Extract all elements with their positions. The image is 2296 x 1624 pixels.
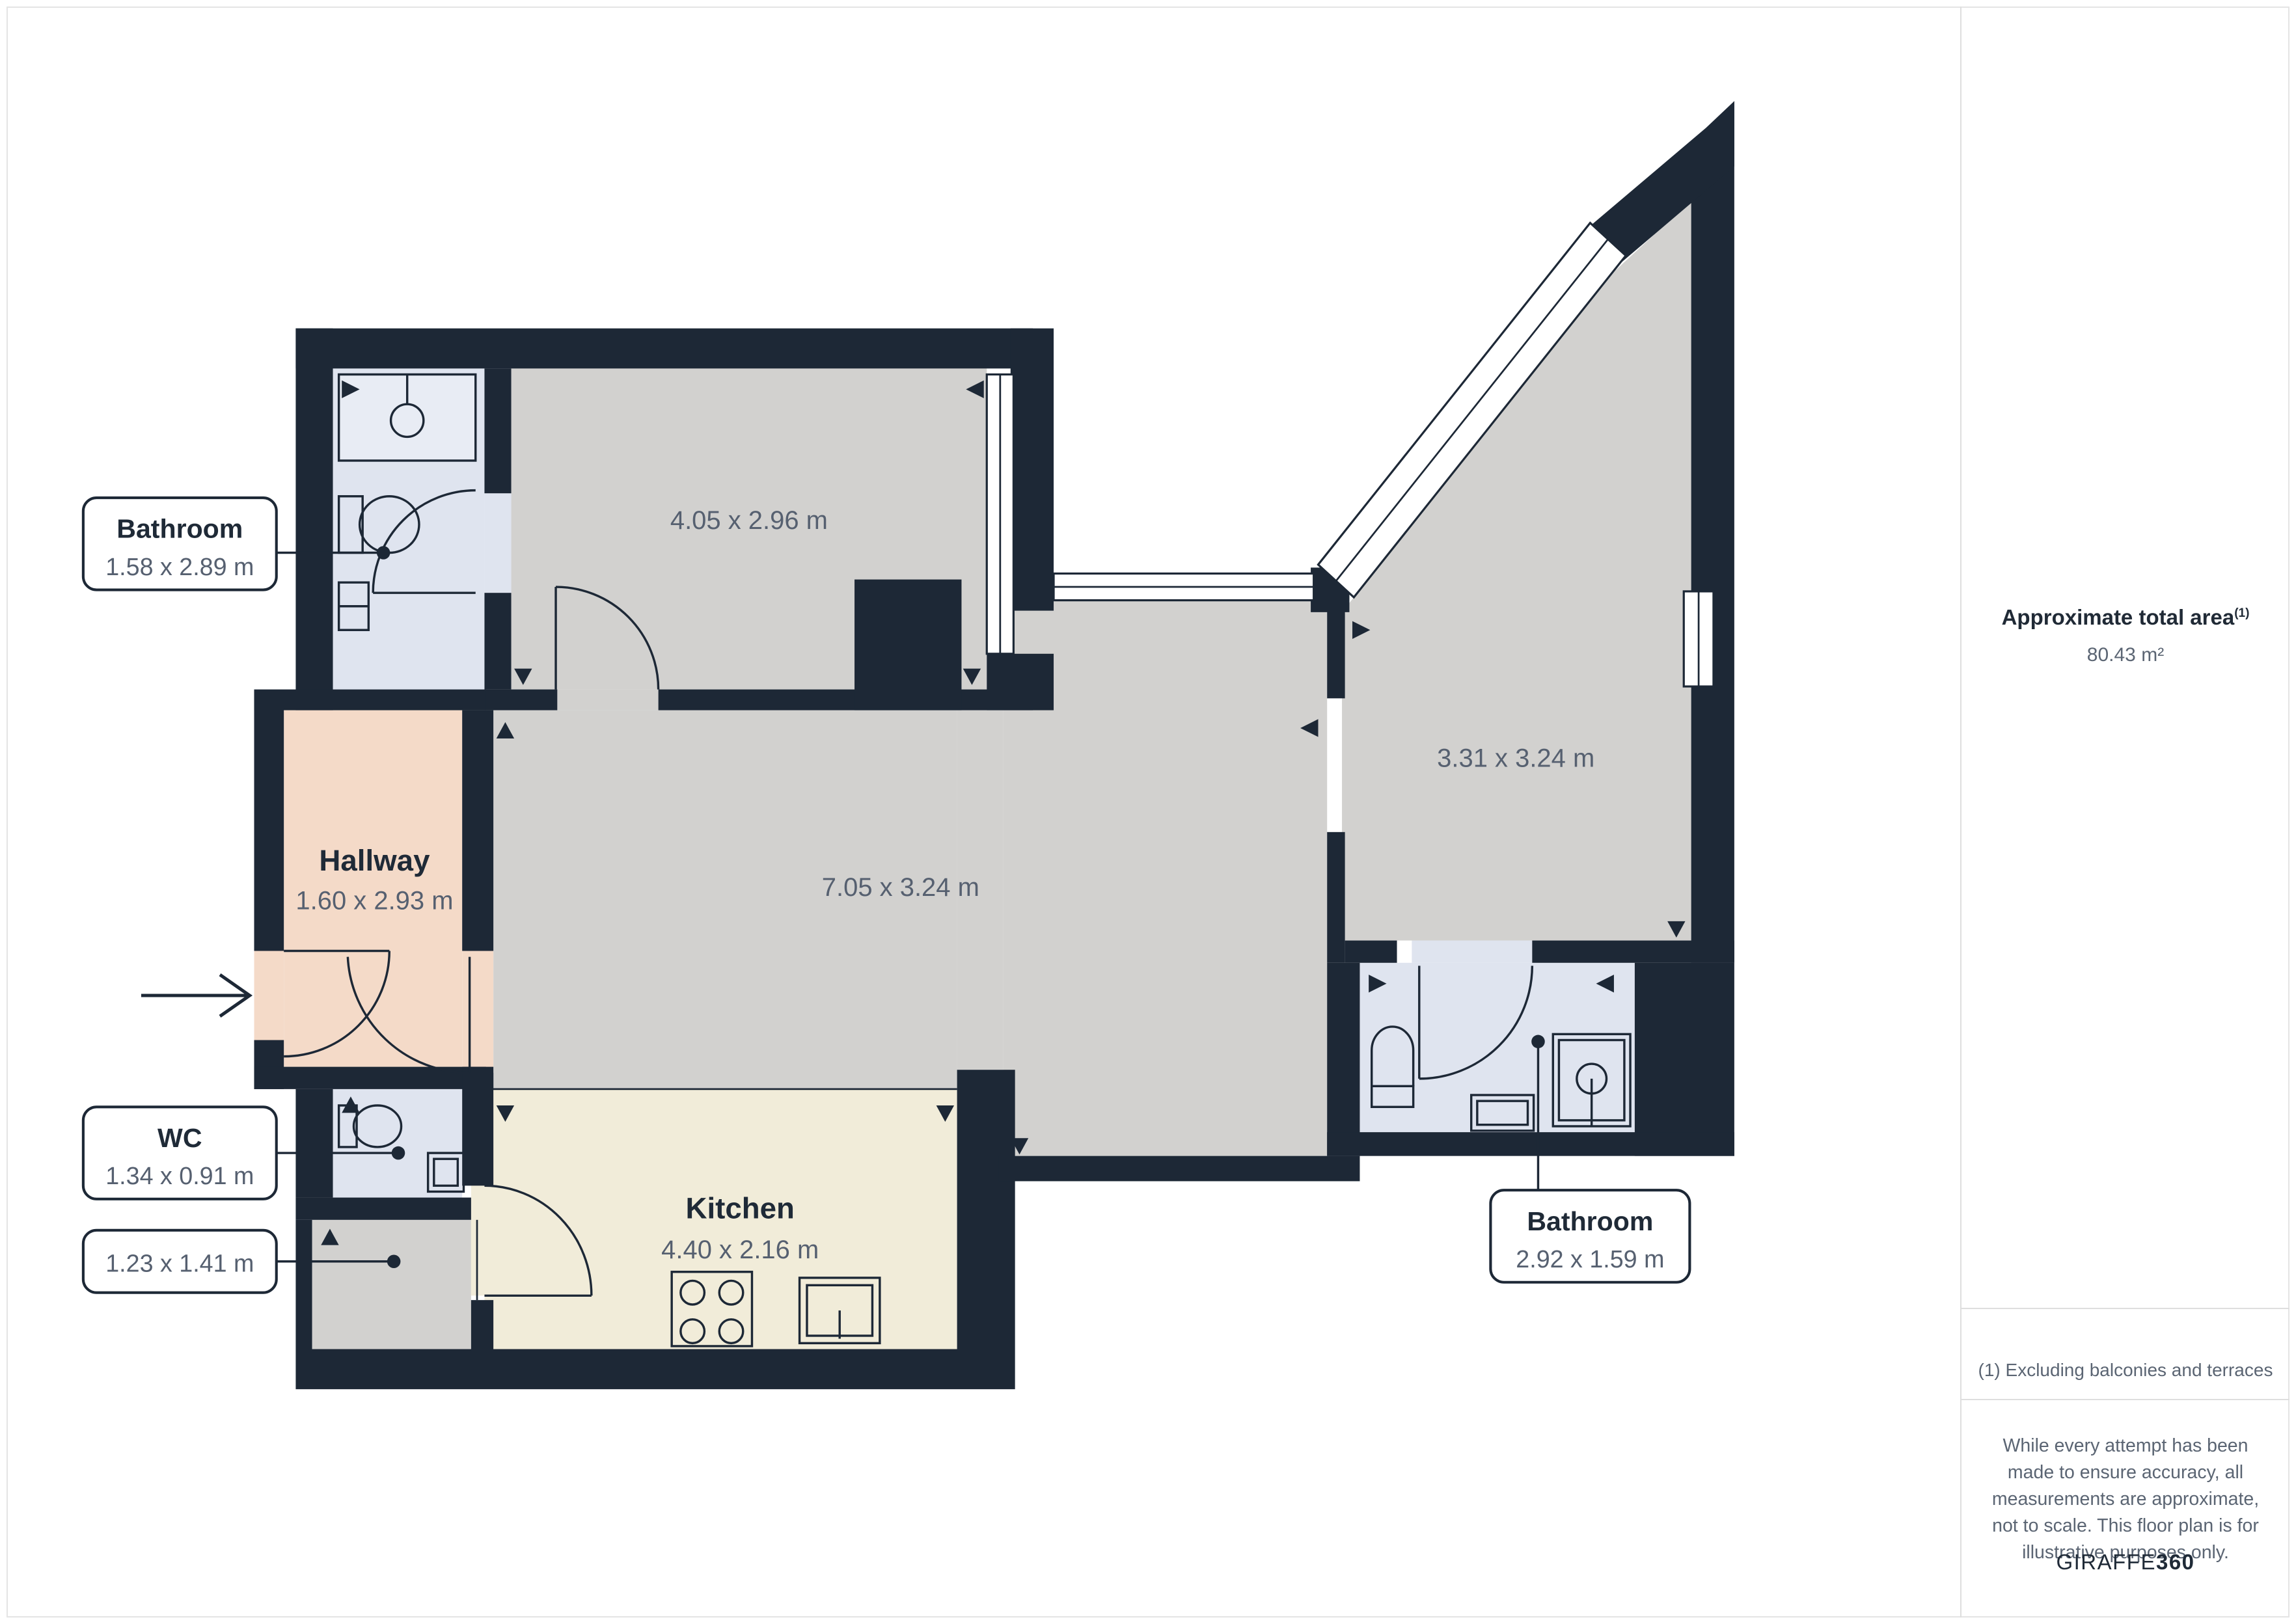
callout-dims: 1.34 x 0.91 m bbox=[105, 1162, 254, 1189]
wall-segment bbox=[1327, 1132, 1734, 1156]
wall-segment bbox=[999, 1156, 1360, 1182]
room-store-floor bbox=[312, 1220, 471, 1349]
callout-dims: 1.58 x 2.89 m bbox=[105, 553, 254, 580]
divider bbox=[1961, 1308, 2289, 1309]
kitchen-name: Kitchen bbox=[685, 1192, 794, 1225]
wall-segment bbox=[295, 1089, 333, 1198]
wall-right bbox=[1691, 101, 1734, 962]
wall-segment bbox=[1345, 941, 1397, 963]
giraffe360-logo: GIRAFFE360 bbox=[1961, 1550, 2289, 1575]
footnote-marker: (1) bbox=[2234, 606, 2249, 620]
floorplan-canvas: 4.05 x 2.96 m 7.05 x 3.24 m 3.31 x 3.24 … bbox=[0, 0, 1960, 1624]
wall-segment bbox=[295, 329, 333, 710]
hallway-name: Hallway bbox=[319, 844, 430, 877]
callout-name: Bathroom bbox=[116, 514, 243, 544]
callout-name: WC bbox=[157, 1123, 202, 1153]
brand-bold: 360 bbox=[2156, 1550, 2195, 1574]
kitchen-door-gap bbox=[471, 1185, 493, 1295]
wall-segment bbox=[1327, 601, 1345, 699]
wall-segment bbox=[1011, 329, 1054, 611]
wall-segment bbox=[295, 1198, 471, 1220]
right-room-dims: 3.31 x 3.24 m bbox=[1437, 744, 1594, 772]
bathroom-top-door-gap bbox=[484, 493, 511, 593]
wall-segment bbox=[484, 368, 511, 493]
callout-dims: 2.92 x 1.59 m bbox=[1516, 1245, 1664, 1273]
wall-segment bbox=[1327, 963, 1360, 1156]
wall-segment bbox=[462, 1067, 493, 1186]
room-right-floor bbox=[1342, 196, 1695, 940]
total-area-value: 80.43 m² bbox=[1961, 644, 2289, 666]
wall-segment bbox=[295, 1349, 1015, 1390]
living-dims: 7.05 x 3.24 m bbox=[822, 873, 979, 902]
info-sidebar: Approximate total area(1) 80.43 m² (1) E… bbox=[1960, 7, 2289, 1617]
wall-segment bbox=[254, 691, 284, 951]
divider bbox=[1961, 1399, 2289, 1400]
total-area-block: Approximate total area(1) 80.43 m² bbox=[1961, 605, 2289, 666]
hallway-dims: 1.60 x 2.93 m bbox=[295, 887, 453, 915]
callout-name: Bathroom bbox=[1527, 1206, 1653, 1236]
entrance-arrow-icon bbox=[141, 975, 250, 1016]
brand-regular: GIRAFFE bbox=[2056, 1550, 2156, 1574]
wall-segment bbox=[462, 710, 493, 951]
wall-segment bbox=[659, 690, 1033, 710]
callout-dims: 1.23 x 1.41 m bbox=[105, 1250, 254, 1277]
wall-segment bbox=[254, 690, 485, 710]
wall-segment bbox=[987, 654, 1054, 710]
wall-segment bbox=[957, 1070, 1015, 1349]
wall-segment bbox=[1635, 963, 1734, 1156]
bathroom-bottom-door-gap bbox=[1412, 941, 1532, 963]
wall-segment bbox=[484, 690, 557, 710]
wall-segment bbox=[1327, 832, 1345, 963]
total-area-title: Approximate total area(1) bbox=[1961, 605, 2289, 630]
wall-segment bbox=[295, 329, 1033, 369]
area-footnote: (1) Excluding balconies and terraces bbox=[1961, 1360, 2289, 1381]
bedroom-dims: 4.05 x 2.96 m bbox=[670, 506, 828, 535]
total-area-title-text: Approximate total area bbox=[2002, 605, 2235, 629]
hallway-door-gap bbox=[462, 951, 493, 1073]
kitchen-dims: 4.40 x 2.16 m bbox=[661, 1236, 819, 1264]
wall-column bbox=[854, 580, 961, 710]
wall-segment bbox=[295, 1220, 312, 1349]
wall-segment bbox=[254, 1067, 485, 1089]
disclaimer-text: While every attempt has been made to ens… bbox=[1986, 1433, 2265, 1566]
wall-segment bbox=[484, 593, 511, 689]
hallway-entry-gap bbox=[254, 951, 284, 1040]
bedroom-door-gap bbox=[557, 690, 658, 710]
wall-segment bbox=[471, 1300, 493, 1349]
